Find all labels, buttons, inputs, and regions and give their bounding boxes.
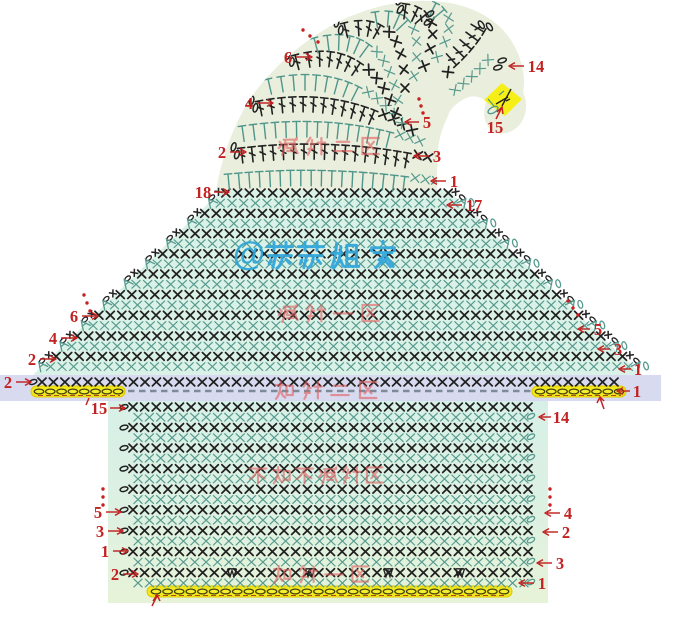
svg-text:2: 2	[562, 523, 570, 542]
svg-text:6: 6	[284, 48, 292, 67]
svg-text:18: 18	[195, 183, 212, 202]
svg-text:5: 5	[423, 113, 431, 132]
svg-text:1: 1	[101, 542, 109, 561]
svg-text:5: 5	[594, 320, 602, 339]
svg-text:1: 1	[633, 382, 641, 401]
svg-text:2: 2	[218, 143, 226, 162]
svg-text:6: 6	[70, 307, 78, 326]
svg-text:14: 14	[528, 57, 545, 76]
svg-text:4: 4	[49, 329, 57, 348]
svg-text:4: 4	[564, 504, 572, 523]
svg-text:17: 17	[466, 196, 483, 215]
svg-text:1: 1	[538, 574, 546, 593]
svg-text:15: 15	[91, 399, 108, 418]
svg-text:3: 3	[614, 340, 622, 359]
svg-text:3: 3	[96, 522, 104, 541]
svg-text:1: 1	[450, 172, 458, 191]
svg-text:14: 14	[553, 408, 570, 427]
svg-text:1: 1	[634, 360, 642, 379]
svg-text:3: 3	[433, 147, 441, 166]
svg-text:5: 5	[94, 503, 102, 522]
svg-text:@: @	[233, 235, 265, 272]
svg-text:2: 2	[28, 350, 36, 369]
svg-text:2: 2	[111, 565, 119, 584]
svg-text:15: 15	[487, 118, 504, 137]
svg-text:3: 3	[556, 554, 564, 573]
svg-text:2: 2	[4, 373, 12, 392]
svg-text:4: 4	[245, 94, 253, 113]
